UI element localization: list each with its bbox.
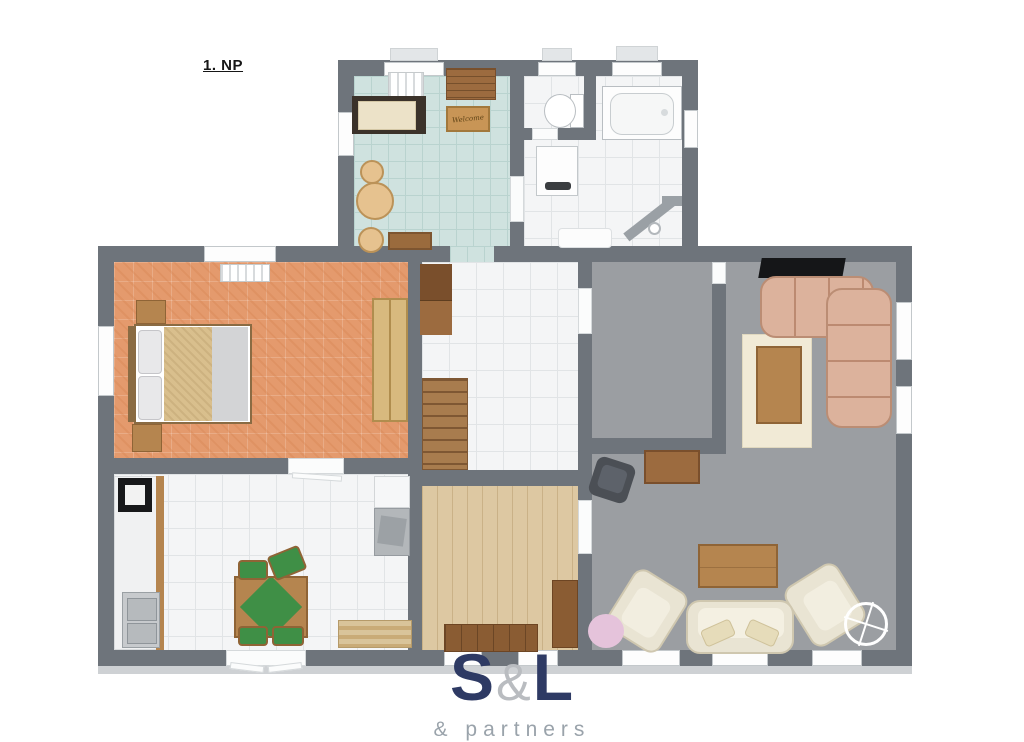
wardrobe-seam [389, 300, 391, 420]
staircase [422, 378, 468, 470]
corner-sofa-right-arm [826, 288, 892, 428]
range-with-hood [374, 508, 410, 556]
wall-den-right [712, 282, 726, 454]
logo-ampersand: & [496, 654, 532, 712]
logo-letter-s: S [450, 640, 495, 714]
washing-machine-door [545, 182, 571, 190]
window-sill [616, 46, 658, 61]
welcome-mat: Welcome [446, 106, 490, 132]
bathroom-window [612, 62, 662, 76]
window-sill [542, 48, 572, 61]
bed-blanket-tan [164, 327, 212, 421]
wall-hallway-study [408, 470, 592, 486]
stove-cooktop [118, 478, 152, 512]
logo-letter-l: L [533, 640, 574, 714]
kitchen-sink [122, 592, 160, 648]
bathroom-side-window [684, 110, 698, 148]
range-hood [377, 515, 407, 546]
dining-chair-3 [238, 626, 268, 646]
sink-basin-2 [127, 623, 157, 644]
ceiling-fan-symbol [844, 602, 888, 646]
bench-cushion [358, 101, 416, 130]
den-living-door [712, 262, 726, 284]
logo-tagline: & partners [0, 718, 1024, 742]
floor-plan-image: 1. NP [0, 0, 1024, 742]
nightstand-bottom [132, 424, 162, 452]
coffee-table [756, 346, 802, 424]
wardrobe [372, 298, 408, 422]
dining-chair-1 [238, 560, 268, 580]
entry-stool-large [356, 182, 394, 220]
den-door [578, 288, 592, 334]
wall-wc-right [584, 76, 596, 134]
shower-drain [648, 222, 661, 235]
outer-wall-left [98, 246, 114, 666]
tall-cabinet [552, 580, 578, 648]
bathtub [602, 86, 682, 140]
wall-bedroom-kitchen [114, 458, 408, 474]
welcome-mat-text: Welcome [447, 106, 489, 132]
hall-cabinet-top [420, 264, 452, 300]
logo-wordmark: S&L [0, 646, 1024, 714]
pink-round-rug [588, 614, 624, 648]
tv [758, 258, 846, 278]
double-bed [134, 324, 252, 424]
living-right-window-1 [896, 302, 912, 360]
outer-wall-annex-left [338, 60, 354, 262]
sink-basin-1 [127, 598, 157, 621]
hall-cabinet-bottom [420, 300, 452, 335]
bedroom-side-window [98, 326, 114, 396]
armchair-left-cushion [619, 585, 673, 641]
study-living-door [578, 500, 592, 554]
window-sill [390, 48, 438, 61]
entry-hallway-opening [450, 246, 494, 262]
nightstand-top [136, 300, 166, 324]
bath-mat [558, 228, 612, 248]
fridge [374, 476, 410, 508]
floor-label: 1. NP [203, 57, 243, 74]
entry-bench [352, 96, 426, 134]
wc-door [532, 128, 558, 140]
entry-stool-small-2 [358, 227, 384, 253]
bedroom-top-window [204, 246, 276, 262]
stove-surface [125, 485, 145, 505]
dark-armchair-cushion [596, 464, 628, 495]
entry-doormat [388, 232, 432, 250]
dining-chair-4 [272, 626, 304, 646]
pillow-1 [138, 330, 162, 374]
bathroom-door [510, 176, 524, 222]
watermark-logo: S&L & partners [0, 646, 1024, 742]
desk [644, 450, 700, 484]
entry-radiator [388, 72, 424, 98]
kitchen-runner-rug [338, 620, 412, 648]
shower-wall-2 [662, 196, 682, 206]
wall-entry-bath [510, 76, 524, 262]
shoe-cabinet [446, 68, 496, 100]
wc-window [538, 62, 576, 76]
toilet-bowl [544, 94, 576, 128]
living-table [698, 544, 778, 588]
entry-stool-small-1 [360, 160, 384, 184]
pillow-2 [138, 376, 162, 420]
living-right-window-2 [896, 386, 912, 434]
bed-blanket-gray [212, 327, 248, 421]
bedroom-radiator [220, 264, 270, 282]
washing-machine [536, 146, 578, 196]
bathtub-drain [661, 109, 668, 116]
outer-wall-annex-right [682, 60, 698, 262]
